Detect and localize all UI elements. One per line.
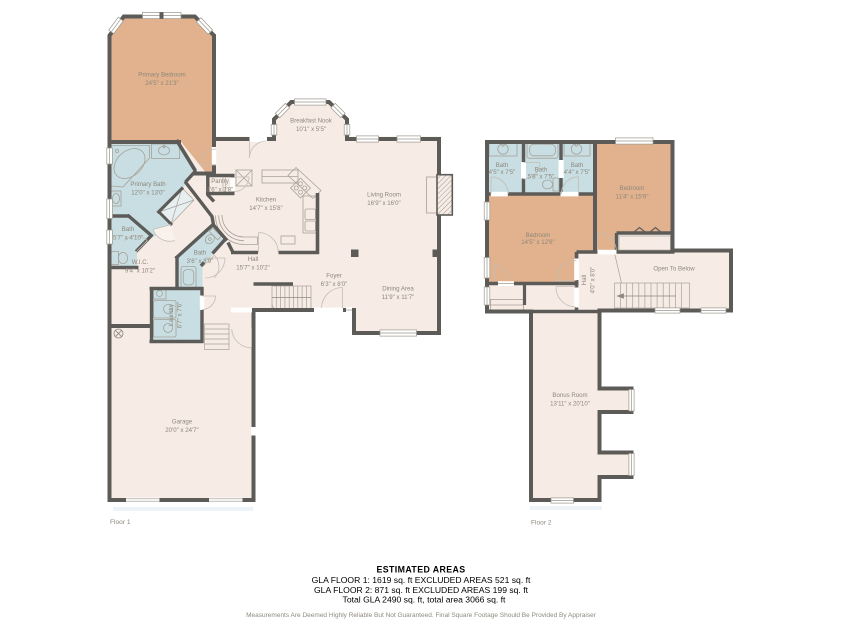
svg-text:4'5" x 7'5": 4'5" x 7'5" bbox=[489, 169, 516, 176]
svg-text:ESTIMATED AREAS: ESTIMATED AREAS bbox=[376, 565, 465, 575]
svg-text:6'7" x 7'6": 6'7" x 7'6" bbox=[177, 302, 184, 329]
svg-text:Floor 2: Floor 2 bbox=[531, 520, 552, 527]
svg-text:4'0" x 8'0": 4'0" x 8'0" bbox=[590, 267, 597, 294]
svg-text:14'5" x 12'6": 14'5" x 12'6" bbox=[521, 239, 554, 246]
svg-text:Dining Area: Dining Area bbox=[382, 286, 414, 293]
svg-text:Bath: Bath bbox=[194, 250, 207, 257]
svg-text:20'0" x 24'7": 20'0" x 24'7" bbox=[165, 427, 198, 434]
svg-text:11'9" x 11'7": 11'9" x 11'7" bbox=[382, 294, 415, 301]
svg-text:Bath: Bath bbox=[122, 226, 135, 233]
svg-text:13'11" x 20'10": 13'11" x 20'10" bbox=[550, 401, 590, 408]
svg-text:5'8" x 7'5": 5'8" x 7'5" bbox=[528, 174, 555, 181]
svg-text:Pantry: Pantry bbox=[211, 178, 230, 185]
svg-text:Garage: Garage bbox=[172, 419, 193, 426]
svg-text:Kitchen: Kitchen bbox=[256, 197, 276, 204]
svg-text:GLA FLOOR 1: 1619 sq. ft EXCLU: GLA FLOOR 1: 1619 sq. ft EXCLUDED AREAS … bbox=[312, 575, 531, 585]
svg-text:Bedroom: Bedroom bbox=[620, 185, 645, 192]
svg-text:24'5" x 21'3": 24'5" x 21'3" bbox=[145, 80, 178, 87]
svg-text:Bath: Bath bbox=[535, 167, 548, 174]
svg-text:10'1" x 5'5": 10'1" x 5'5" bbox=[296, 126, 326, 133]
svg-text:Bath: Bath bbox=[571, 162, 584, 169]
svg-text:Hall: Hall bbox=[248, 256, 259, 263]
svg-text:6'3" x 8'0": 6'3" x 8'0" bbox=[321, 281, 348, 288]
svg-text:3'6" x 2'8": 3'6" x 2'8" bbox=[207, 187, 234, 194]
svg-text:Laundry: Laundry bbox=[168, 303, 175, 326]
svg-text:14'7" x 15'8": 14'7" x 15'8" bbox=[249, 205, 282, 212]
svg-text:Hall: Hall bbox=[581, 275, 588, 286]
svg-text:W.I.C.: W.I.C. bbox=[132, 259, 149, 266]
svg-text:Measurements Are Deemed Highly: Measurements Are Deemed Highly Reliable … bbox=[246, 612, 597, 619]
svg-text:16'9" x 16'0": 16'9" x 16'0" bbox=[367, 200, 400, 207]
svg-text:Breakfast Nook: Breakfast Nook bbox=[290, 118, 333, 125]
svg-text:11'4" x 15'9": 11'4" x 15'9" bbox=[616, 194, 649, 201]
svg-text:Living Room: Living Room bbox=[367, 192, 401, 199]
svg-text:Floor 1: Floor 1 bbox=[110, 519, 131, 526]
svg-text:Open To Below: Open To Below bbox=[653, 266, 695, 273]
svg-text:3'6" x 8'9": 3'6" x 8'9" bbox=[187, 258, 214, 265]
svg-text:Bonus Room: Bonus Room bbox=[552, 392, 587, 399]
svg-text:Primary Bedroom: Primary Bedroom bbox=[138, 72, 185, 79]
svg-text:Bedroom: Bedroom bbox=[526, 232, 551, 239]
svg-text:9'4" x 10'2": 9'4" x 10'2" bbox=[125, 268, 155, 275]
svg-text:5'7" x 4'10": 5'7" x 4'10" bbox=[113, 235, 143, 242]
svg-text:15'7" x 10'2": 15'7" x 10'2" bbox=[236, 265, 269, 272]
svg-text:Bath: Bath bbox=[496, 162, 509, 169]
svg-text:4'4" x 7'5": 4'4" x 7'5" bbox=[564, 169, 591, 176]
svg-text:Primary Bath: Primary Bath bbox=[130, 181, 165, 188]
svg-text:Foyer: Foyer bbox=[326, 273, 342, 280]
svg-text:12'0" x 13'0": 12'0" x 13'0" bbox=[131, 190, 164, 197]
svg-text:Total GLA 2490 sq. ft, total a: Total GLA 2490 sq. ft, total area 3066 s… bbox=[343, 594, 507, 604]
